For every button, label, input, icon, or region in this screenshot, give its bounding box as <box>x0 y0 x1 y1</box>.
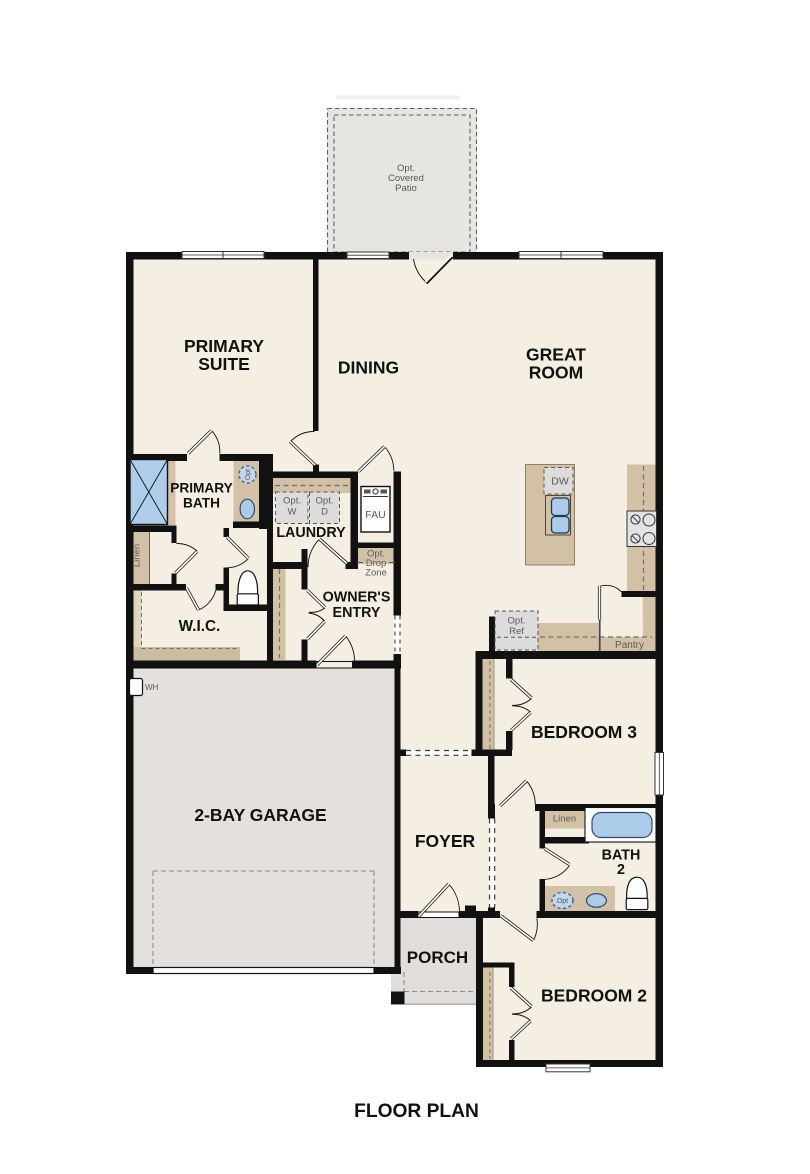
svg-text:WH: WH <box>145 683 159 692</box>
svg-text:Opt: Opt <box>245 469 252 480</box>
svg-text:Opt.: Opt. <box>508 616 526 627</box>
svg-text:BEDROOM 3: BEDROOM 3 <box>531 722 637 742</box>
svg-text:BEDROOM 2: BEDROOM 2 <box>541 986 647 1006</box>
svg-text:2: 2 <box>617 862 625 878</box>
svg-text:D: D <box>321 507 328 518</box>
svg-text:Opt: Opt <box>557 898 568 905</box>
svg-text:Opt.: Opt. <box>316 496 334 507</box>
svg-text:DW: DW <box>551 476 569 488</box>
svg-text:Ref: Ref <box>509 626 524 637</box>
svg-text:GREAT: GREAT <box>526 345 586 365</box>
svg-text:FOYER: FOYER <box>415 831 476 851</box>
svg-text:ENTRY: ENTRY <box>333 605 381 621</box>
svg-text:LAUNDRY: LAUNDRY <box>276 525 346 541</box>
svg-text:Zone: Zone <box>365 568 387 579</box>
svg-text:PRIMARY: PRIMARY <box>184 336 264 356</box>
svg-text:FAU: FAU <box>365 509 385 521</box>
svg-text:PORCH: PORCH <box>407 948 468 967</box>
svg-text:W: W <box>288 507 297 518</box>
svg-text:Linen: Linen <box>132 544 143 567</box>
svg-text:Opt.: Opt. <box>283 496 301 507</box>
svg-text:Pantry: Pantry <box>615 640 644 651</box>
svg-text:OWNER'S: OWNER'S <box>323 590 391 606</box>
svg-text:PRIMARY: PRIMARY <box>170 481 233 496</box>
svg-text:SUITE: SUITE <box>198 354 250 374</box>
svg-text:BATH: BATH <box>183 496 220 511</box>
svg-text:Linen: Linen <box>553 814 576 825</box>
svg-text:DINING: DINING <box>338 358 399 378</box>
svg-text:W.I.C.: W.I.C. <box>179 618 221 635</box>
svg-text:ROOM: ROOM <box>529 363 583 383</box>
svg-text:FLOOR PLAN: FLOOR PLAN <box>354 1101 479 1122</box>
svg-text:Patio: Patio <box>395 183 417 194</box>
svg-text:2-BAY GARAGE: 2-BAY GARAGE <box>194 805 326 825</box>
